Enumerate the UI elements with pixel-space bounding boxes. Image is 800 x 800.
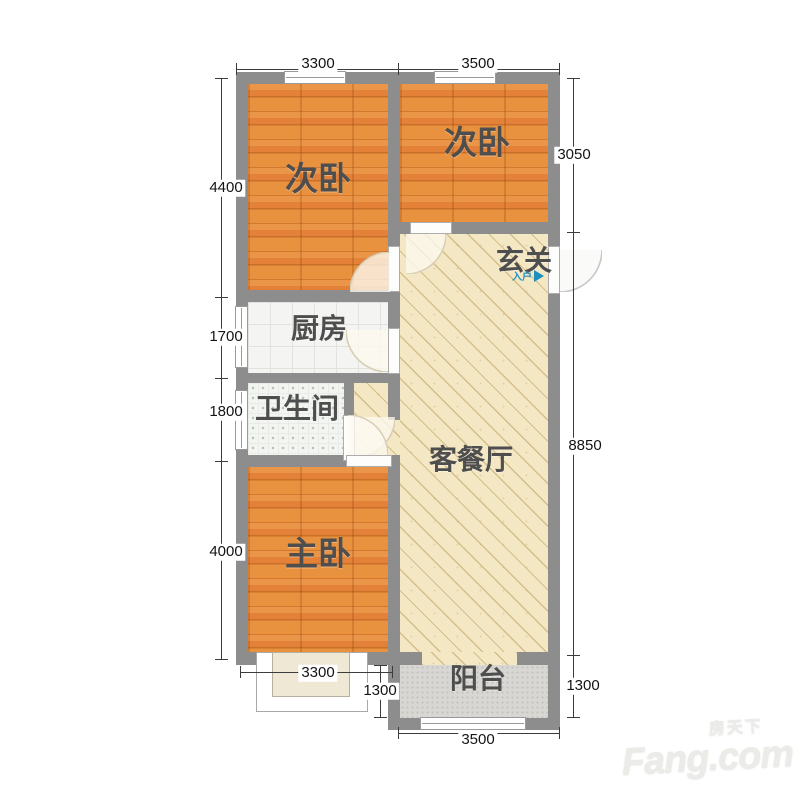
dim-top-left-width: 3300	[298, 56, 337, 73]
kitchen-door-arc	[346, 330, 388, 372]
dim-bath-height: 1800	[206, 404, 245, 421]
fang-watermark: 房天下 Fang.com	[611, 717, 800, 785]
wall-balcony-stub-left	[400, 652, 422, 665]
dim-tick	[215, 659, 228, 660]
window-bedroom-left-top	[284, 71, 346, 84]
dim-tick	[215, 297, 228, 298]
bedroom-left-door-arc	[350, 252, 390, 292]
dim-tick	[567, 232, 580, 233]
dim-tick	[398, 63, 399, 75]
dim-tick	[215, 378, 228, 379]
wall-right	[548, 72, 560, 730]
dim-line-right	[573, 78, 574, 718]
label-bedroom-left: 次卧	[285, 152, 351, 200]
master-door-arc	[348, 415, 388, 455]
dim-master-bottom-width: 3300	[298, 665, 337, 682]
entry-arrow-icon	[534, 270, 544, 282]
label-bedroom-right: 次卧	[444, 116, 510, 164]
dim-tick	[374, 717, 387, 718]
label-master: 主卧	[285, 527, 351, 575]
dim-tick	[236, 63, 237, 75]
entry-arrow-label: 入户	[512, 268, 532, 283]
dim-tick	[559, 63, 560, 75]
wall-bath-right	[344, 383, 354, 417]
floor-plan-canvas: 3300 3500 4400 1700 1800 4000 3050 8850 …	[0, 0, 800, 800]
wall-left	[236, 72, 248, 665]
bedroom-right-door-leaf	[410, 222, 452, 234]
label-balcony: 阳台	[450, 657, 506, 697]
dim-balcony-right-depth: 1300	[563, 678, 602, 695]
window-bedroom-right-top	[434, 71, 496, 84]
dim-tick	[240, 666, 241, 678]
dim-tick	[398, 727, 399, 739]
dim-master-height: 4000	[206, 544, 245, 561]
dim-tick	[567, 78, 580, 79]
wall-bath-bottom	[236, 455, 348, 467]
dim-right-bedroom-height: 3050	[554, 147, 593, 164]
dim-line-left	[221, 78, 222, 659]
wall-kitchen-bath-divider	[236, 373, 400, 383]
dim-tick	[215, 78, 228, 79]
dim-balcony-left-depth: 1300	[360, 683, 399, 700]
dim-tick	[374, 665, 387, 666]
dim-tick	[559, 727, 560, 739]
label-living: 客餐厅	[429, 438, 513, 478]
wall-balcony-stub-right	[517, 652, 548, 665]
label-kitchen: 厨房	[291, 307, 347, 347]
master-door-leaf	[346, 455, 392, 467]
entry-direction-indicator: 入户	[512, 268, 544, 283]
label-bathroom: 卫生间	[255, 387, 339, 427]
bedroom-right-door-arc	[406, 234, 446, 274]
fang-watermark-logo: Fang.com	[611, 733, 800, 785]
dim-top-right-width: 3500	[458, 56, 497, 73]
kitchen-door-leaf	[388, 328, 400, 374]
entrance-door-arc	[560, 250, 602, 292]
dim-balcony-bottom-width: 3500	[458, 732, 497, 749]
dim-tick	[215, 461, 228, 462]
dim-living-height: 8850	[565, 438, 604, 455]
dim-kitchen-height: 1700	[206, 329, 245, 346]
dim-tick	[392, 666, 393, 678]
dim-tick	[567, 717, 580, 718]
window-balcony-bottom	[420, 717, 526, 730]
dim-tick	[567, 655, 580, 656]
dim-left-bedroom-height: 4400	[206, 180, 245, 197]
